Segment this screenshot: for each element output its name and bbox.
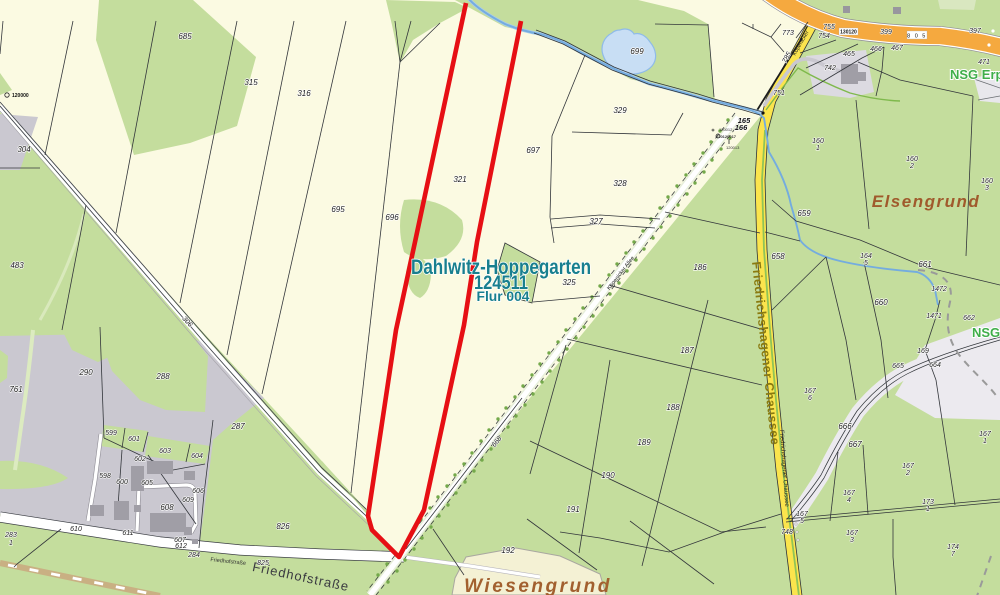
svg-text:661: 661 (918, 260, 931, 269)
svg-text:609: 609 (182, 497, 194, 504)
svg-text:397: 397 (969, 28, 982, 35)
svg-text:695: 695 (331, 205, 345, 214)
svg-text:329: 329 (613, 106, 627, 115)
svg-text:612: 612 (175, 543, 187, 550)
svg-text:173: 173 (922, 499, 934, 506)
svg-text:188: 188 (666, 403, 680, 412)
svg-text:659: 659 (797, 209, 811, 218)
svg-text:316: 316 (297, 89, 311, 98)
svg-text:167: 167 (843, 490, 856, 497)
svg-text:666: 666 (838, 422, 852, 431)
svg-text:Wiesengrund: Wiesengrund (464, 576, 612, 595)
svg-text:606: 606 (192, 488, 204, 495)
svg-text:187: 187 (680, 346, 694, 355)
svg-text:Elsengrund: Elsengrund (872, 192, 981, 211)
svg-text:191: 191 (566, 505, 579, 514)
svg-text:160: 160 (812, 138, 824, 145)
svg-text:4: 4 (847, 497, 851, 504)
svg-text:283: 283 (4, 532, 17, 539)
svg-text:160: 160 (981, 178, 993, 185)
svg-text:190: 190 (601, 471, 615, 480)
svg-text:1: 1 (816, 145, 820, 152)
svg-text:483: 483 (10, 261, 24, 270)
svg-text:167: 167 (796, 511, 809, 518)
svg-text:NSG E: NSG E (972, 325, 1000, 340)
svg-text:Flur 004: Flur 004 (477, 288, 530, 304)
svg-text:773: 773 (782, 30, 794, 37)
svg-text:825: 825 (257, 560, 269, 567)
svg-text:6: 6 (808, 395, 812, 402)
svg-text:3: 3 (985, 185, 989, 192)
svg-text:685: 685 (178, 32, 192, 41)
svg-text:599: 599 (105, 430, 117, 437)
svg-text:164: 164 (860, 253, 872, 260)
svg-text:467: 467 (891, 45, 904, 52)
svg-text:NSG Erpe: NSG Erpe (950, 67, 1000, 82)
svg-text:321: 321 (453, 175, 466, 184)
svg-text:328: 328 (613, 179, 627, 188)
svg-text:761: 761 (9, 385, 22, 394)
svg-text:3: 3 (850, 537, 854, 544)
svg-text:2: 2 (905, 470, 910, 477)
svg-text:399: 399 (880, 29, 892, 36)
svg-text:290: 290 (78, 368, 93, 377)
svg-text:604: 604 (191, 453, 203, 460)
svg-text:826: 826 (276, 522, 290, 531)
svg-text:754: 754 (818, 33, 830, 40)
svg-text:608: 608 (160, 503, 174, 512)
svg-text:5: 5 (864, 260, 868, 267)
svg-text:167: 167 (902, 463, 915, 470)
svg-text:660: 660 (874, 298, 888, 307)
svg-text:169: 169 (917, 348, 929, 355)
svg-text:1: 1 (926, 506, 930, 513)
svg-text:186: 186 (693, 263, 707, 272)
svg-text:288: 288 (155, 372, 170, 381)
svg-text:755: 755 (823, 24, 835, 31)
svg-text:2: 2 (909, 163, 914, 170)
svg-text:192: 192 (501, 546, 515, 555)
svg-text:610: 610 (70, 526, 82, 533)
svg-text:697: 697 (526, 146, 540, 155)
svg-text:600: 600 (116, 479, 128, 486)
svg-text:664: 664 (929, 362, 941, 369)
svg-text:751: 751 (773, 90, 785, 97)
svg-text:167: 167 (846, 530, 859, 537)
svg-text:602: 602 (134, 456, 146, 463)
svg-text:5: 5 (800, 518, 804, 525)
svg-text:120012: 120012 (719, 127, 733, 132)
svg-text:120000: 120000 (12, 93, 29, 99)
svg-text:284: 284 (187, 552, 200, 559)
svg-text:287: 287 (230, 422, 245, 431)
svg-text:130120: 130120 (840, 30, 857, 36)
svg-text:1472: 1472 (931, 286, 947, 293)
svg-text:315: 315 (244, 78, 258, 87)
svg-text:304: 304 (17, 145, 31, 154)
svg-text:1: 1 (9, 540, 13, 547)
svg-text:658: 658 (771, 252, 785, 261)
svg-text:465: 465 (843, 51, 855, 58)
svg-text:662: 662 (963, 315, 975, 322)
svg-text:598: 598 (99, 473, 111, 480)
svg-text:603: 603 (159, 448, 171, 455)
svg-text:601: 601 (128, 436, 140, 443)
svg-text:466: 466 (870, 46, 882, 53)
svg-text:8 0 5: 8 0 5 (907, 34, 927, 40)
svg-text:120120017: 120120017 (716, 134, 737, 139)
svg-text:189: 189 (637, 438, 651, 447)
svg-text:471: 471 (978, 59, 990, 66)
svg-text:166: 166 (735, 123, 748, 132)
svg-text:667: 667 (848, 440, 862, 449)
svg-text:167: 167 (804, 388, 817, 395)
svg-text:160: 160 (906, 156, 918, 163)
svg-text:325: 325 (562, 278, 576, 287)
svg-text:327: 327 (589, 217, 603, 226)
svg-text:120013: 120013 (726, 145, 740, 150)
svg-text:748: 748 (781, 529, 793, 536)
svg-text:167: 167 (979, 431, 992, 438)
svg-text:611: 611 (122, 530, 133, 537)
svg-text:742: 742 (824, 65, 836, 72)
svg-text:696: 696 (385, 213, 399, 222)
svg-text:665: 665 (892, 363, 904, 370)
svg-text:605: 605 (141, 480, 153, 487)
svg-text:699: 699 (630, 47, 644, 56)
svg-text:1471: 1471 (926, 313, 942, 320)
svg-text:1: 1 (983, 438, 987, 445)
svg-text:174: 174 (947, 544, 959, 551)
